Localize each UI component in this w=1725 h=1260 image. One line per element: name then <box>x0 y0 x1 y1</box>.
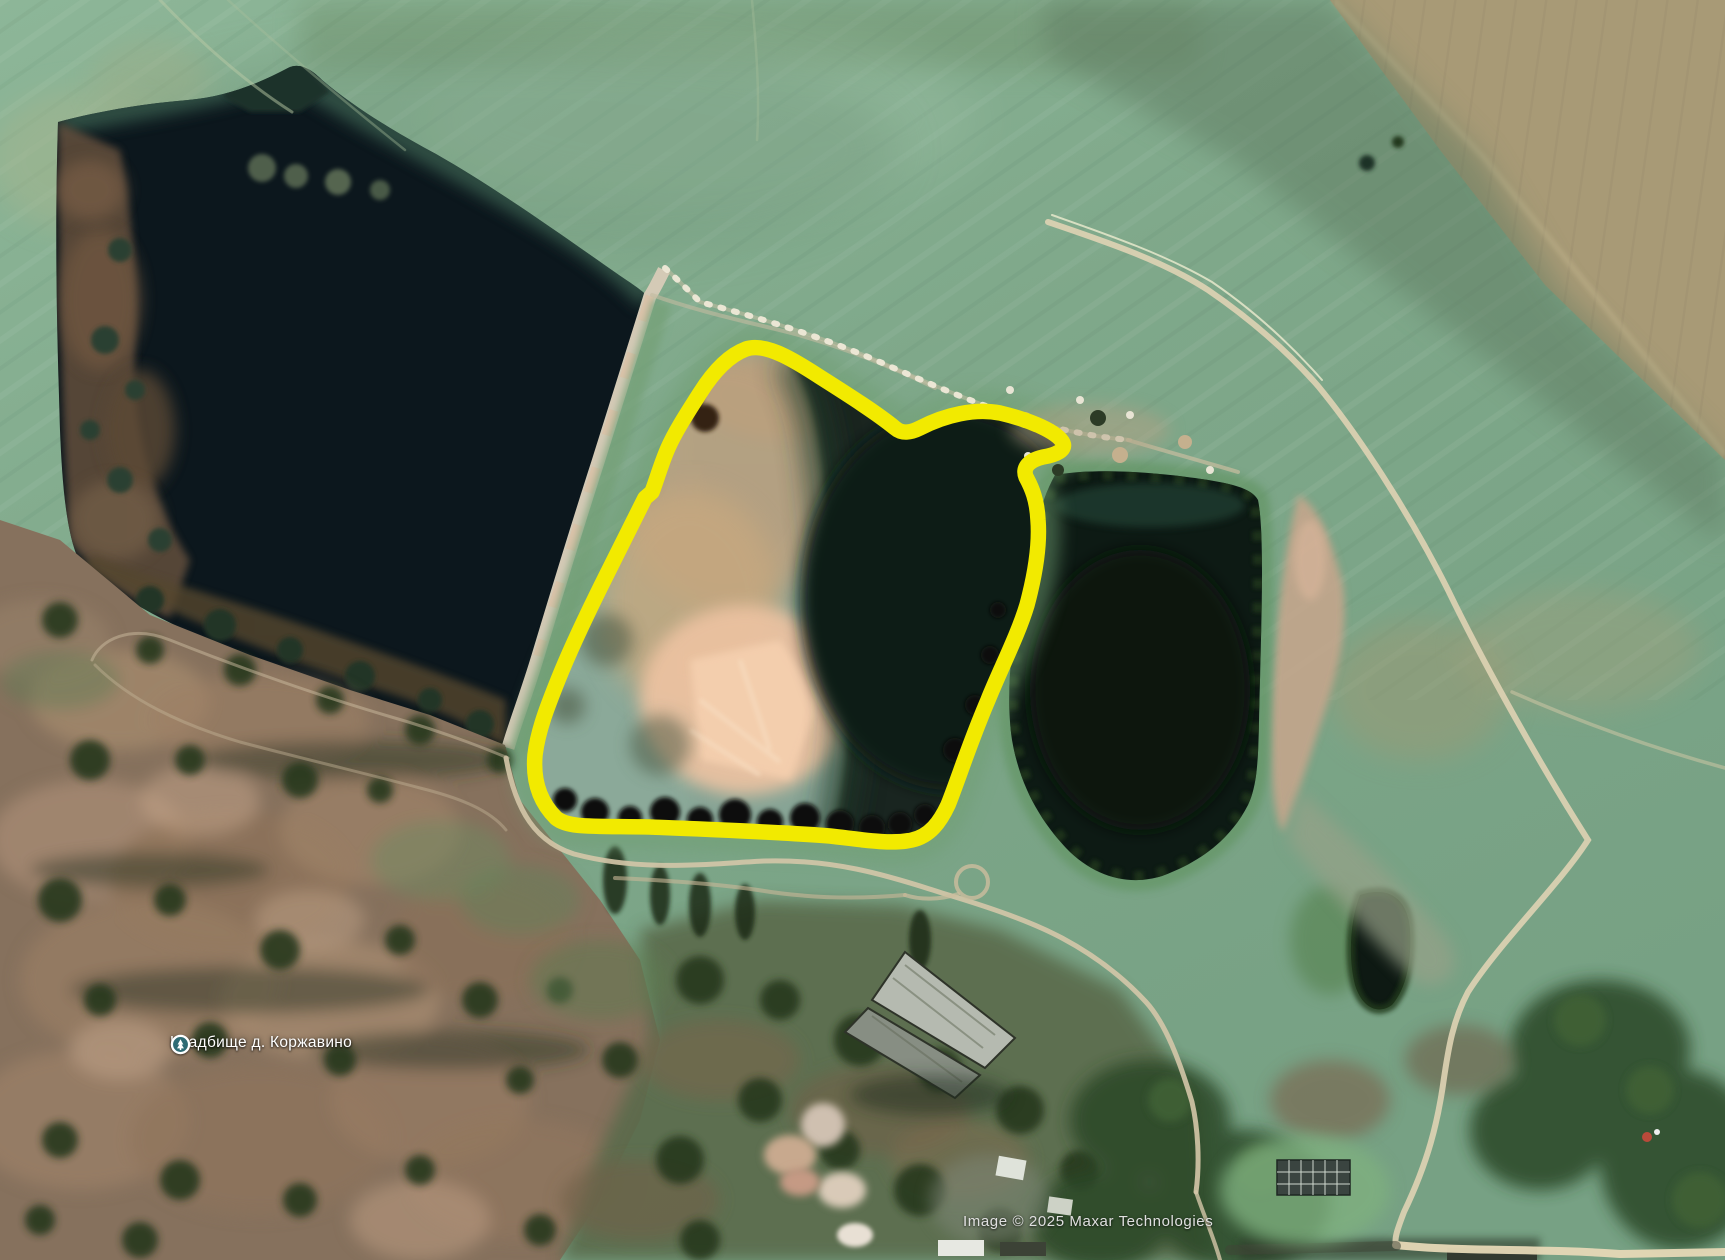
satellite-map[interactable] <box>0 0 1725 1260</box>
treatment-plant <box>1220 1135 1390 1245</box>
red-object <box>1642 1132 1652 1142</box>
cemetery-place-label[interactable]: Кладбище д. Коржавино <box>170 1034 352 1052</box>
attribution-text: Image © 2025 Maxar Technologies <box>963 1213 1213 1230</box>
cemetery-label-text: Кладбище д. Коржавино <box>170 1034 352 1052</box>
cemetery-marker-icon[interactable] <box>170 1034 191 1055</box>
map-canvas[interactable]: Кладбище д. Коржавино Image © 2025 Maxar… <box>0 0 1725 1260</box>
